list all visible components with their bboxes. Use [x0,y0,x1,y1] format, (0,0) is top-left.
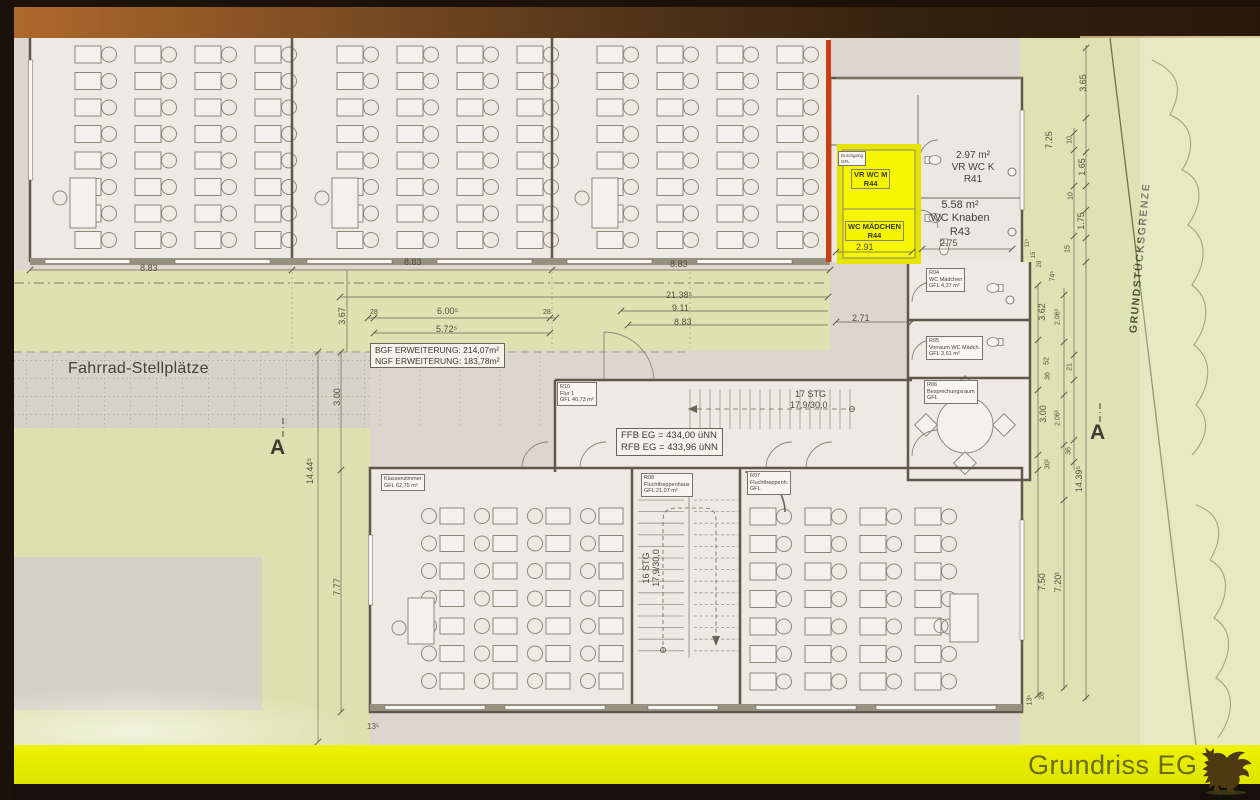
dim-911: 9.11 [672,303,689,313]
projected-floor-plan-photo: Fahrrad-Stellplätze 8.83 8.83 8.83 21.38… [0,0,1260,800]
dim-367: 3.67 [337,307,347,325]
dim-745: 74⁵ [1050,271,1057,282]
dim-362: 3.62 [1037,303,1047,321]
dim-1444: 14.44⁵ [305,458,315,484]
room-label-vr-wc-m: VR WC M R44 [851,169,890,189]
stair-top-count: 17 STG [795,389,826,399]
room-label-durchgang: Durchgang GFL [838,151,866,166]
dim-2138: 21.38⁵ [666,290,692,300]
room-nr: R44 [848,231,901,240]
stair-bottom-label: 16 STG 17,9/30,0 [641,549,661,587]
dim-135-r: 13⁵ [1027,695,1034,706]
room-gfl: GFL 4,37 m² [929,283,962,290]
dim-271: 2.71 [852,313,870,323]
room-gfl: GFL [841,159,863,165]
room-nr: R44 [854,179,887,188]
dim-600: 6.00⁵ [437,306,458,316]
room-name: Klassenzimmer [384,476,422,483]
dim-300-l: 3.00 [332,388,342,406]
room-label-r06: R06 Besprechungsraum GFL [924,380,978,404]
room-gfl: GFL 62,75 m² [384,483,422,490]
area-info-box: BGF ERWEITERUNG: 214,07m² NGF ERWEITERUN… [370,343,505,368]
room-label-klassenzimmer: Klassenzimmer GFL 62,75 m² [381,474,425,491]
dim-301: 30¹ [1045,459,1052,469]
dim-15-2: 15 [1031,252,1037,259]
screen-edge-wash [1140,38,1260,746]
rfb-line: RFB EG = 433,96 üNN [621,442,718,454]
dim-883-3: 8.83 [670,259,688,269]
room-vr-wc-k-area: 2.97 m² [938,150,1008,161]
dim-572: 5.72⁵ [436,324,457,334]
dim-115: 11⁵ [1025,239,1031,248]
room-label-r08: R08 Fluchttreppenhaus GFL 21,07 m² [641,473,693,497]
room-name: VR WC M [854,170,887,179]
dim-275: 2.75 [940,238,958,248]
plan-title: Grundriss EG [1028,750,1198,781]
level-info-box: FFB EG = 434,00 üNN RFB EG = 433,96 üNN [616,428,723,456]
room-gfl: GFL 21,07 m² [644,488,690,495]
dim-2061: 2.06¹ [1055,410,1062,426]
dim-28-2: 28 [543,309,551,316]
section-marker-a-right: A [1090,421,1105,445]
room-label-r05: R05 Vorraum WC Mädch. GFL 3,61 m² [926,336,983,360]
dim-300-r: 3.00 [1038,405,1048,423]
room-gfl: GFL 40,73 m² [560,397,594,404]
dim-28-4: 28 [1039,692,1046,700]
griffin-logo [1198,746,1254,796]
room-wc-knaben-name: WC Knaben [915,212,1005,224]
dim-7201: 7.20¹ [1053,572,1063,593]
room-label-wc-maedchen: WC MÄDCHEN R44 [845,221,904,241]
dim-10-2: 10 [1068,192,1075,200]
dim-175: 1.75 [1076,212,1086,230]
section-marker-a-left: A [270,436,285,460]
stair-top-dim: 17,9/30,0 [790,400,828,410]
dim-777: 7.77 [332,578,342,596]
stair-bottom-dim: 17,9/30,0 [651,549,661,587]
dim-10-1: 10 [1067,136,1074,144]
room-wc-knaben-nr: R43 [915,226,1005,238]
dim-1439: 14.39⁵ [1074,466,1084,492]
dim-291: 2.91 [856,242,874,252]
stair-bottom-count: 16 STG [641,549,651,587]
dim-2063: 2.06³ [1055,309,1062,325]
ngf-line: NGF ERWEITERUNG: 183,78m² [375,356,500,367]
bgf-line: BGF ERWEITERUNG: 214,07m² [375,345,500,356]
room-gfl: GFL [750,486,788,493]
dim-21: 21 [1067,363,1074,371]
dim-750: 7.50 [1037,573,1047,591]
dim-135-b: 13⁵ [367,722,379,731]
dim-883-4: 8.83 [674,317,692,327]
dim-36-2: 36 [1066,447,1073,455]
dim-725: 7.25 [1044,131,1054,149]
room-name: Durchgang [841,153,863,159]
dim-28-3: 28 [1037,261,1043,268]
dim-883-2: 8.83 [404,257,422,267]
room-gfl: GFL 3,61 m² [929,351,980,358]
dim-15-1: 15 [1065,245,1072,253]
dim-52: 52 [1044,357,1051,365]
dim-36-1: 36 [1045,372,1052,380]
room-label-r10: R10 Flur 1 GFL 40,73 m² [557,382,597,406]
dim-365: 3.65 [1078,74,1088,92]
room-wc-knaben-area: 5.58 m² [920,199,1000,211]
room-label-r07: R07 Fluchttreppenh. GFL [747,471,791,495]
dim-28-1: 28 [370,309,378,316]
floor-plan-svg [0,0,1260,800]
room-label-r04: R04 WC Mädchen GFL 4,37 m² [926,268,965,292]
fahrrad-stellplaetze-label: Fahrrad-Stellplätze [68,360,209,378]
ffb-line: FFB EG = 434,00 üNN [621,430,718,442]
room-name: WC MÄDCHEN [848,222,901,231]
room-vr-wc-k-name: VR WC K [933,162,1013,173]
dim-165: 1.65 [1077,158,1087,176]
dim-883-1: 8.83 [140,263,158,273]
room-vr-wc-k-nr: R41 [933,174,1013,185]
room-gfl: GFL [927,395,975,402]
projector-glow [14,688,354,746]
